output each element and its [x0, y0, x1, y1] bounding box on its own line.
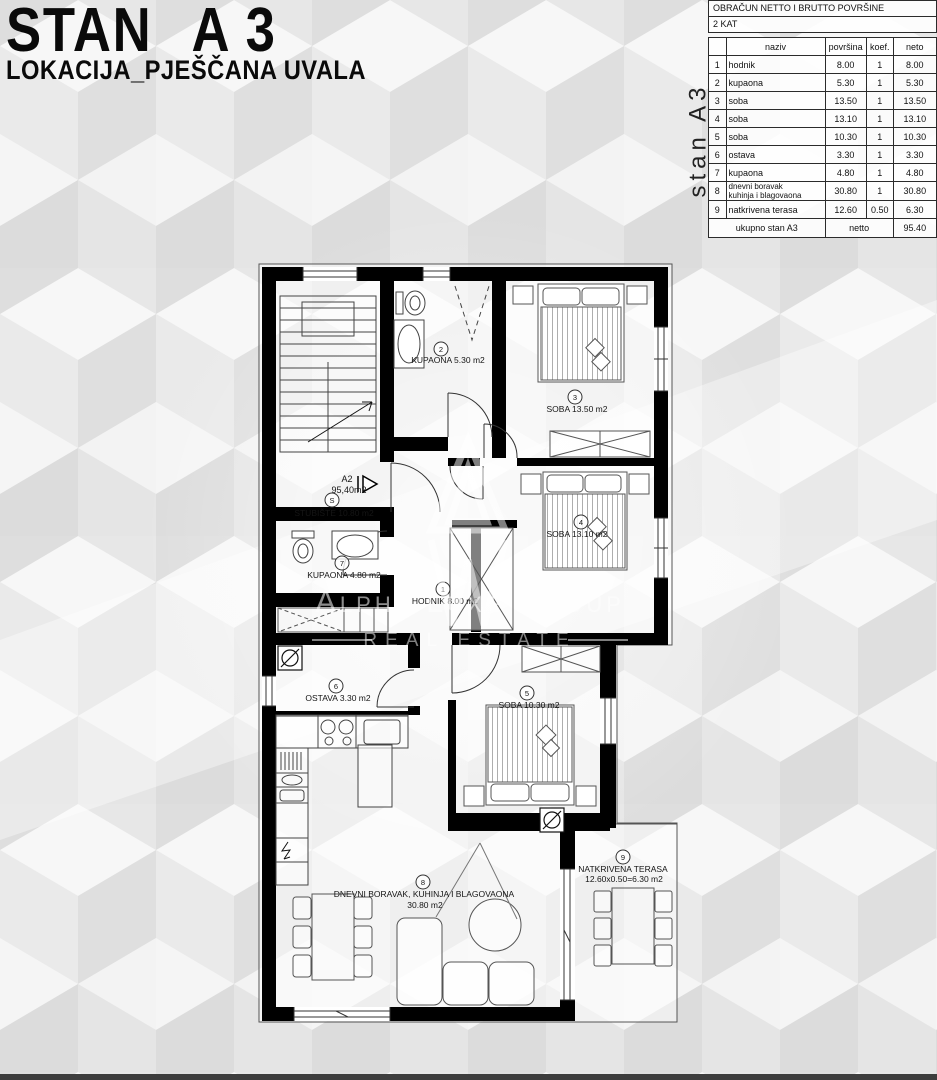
wardrobe-soba3: [550, 431, 650, 457]
chair: [293, 955, 311, 977]
svg-text:5: 5: [525, 689, 529, 698]
toilet-tank: [292, 531, 314, 538]
coffee-table: [469, 899, 521, 951]
nightstand: [627, 286, 647, 304]
nightstand: [521, 474, 541, 494]
total-mode: netto: [825, 219, 893, 238]
nightstand: [576, 786, 596, 806]
svg-text:NATKRIVENA TERASA: NATKRIVENA TERASA: [578, 864, 668, 874]
svg-text:30.80 m2: 30.80 m2: [407, 900, 443, 910]
window: [423, 267, 450, 281]
sofa-chaise: [397, 918, 442, 1005]
table-row: 2kupaona5.3015.30: [709, 74, 937, 92]
nightstand: [513, 286, 533, 304]
svg-text:95,40m2: 95,40m2: [331, 485, 366, 495]
svg-text:8: 8: [421, 878, 425, 887]
svg-text:STUBIŠTE 10.80 m2: STUBIŠTE 10.80 m2: [294, 508, 374, 518]
svg-text:S: S: [329, 496, 334, 505]
svg-text:DNEVNI BORAVAK, KUHINJA I BLAG: DNEVNI BORAVAK, KUHINJA I BLAGOVAONA: [334, 889, 515, 899]
area-table: naziv površina koef. neto 1hodnik8.0018.…: [708, 37, 937, 238]
table-header-box: OBRAČUN NETTO I BRUTTO POVRŠINE 2 KAT: [708, 0, 937, 33]
sink-basin: [337, 535, 373, 557]
table-row: 1hodnik8.0018.00: [709, 56, 937, 74]
chair: [354, 897, 372, 919]
table-floor: 2 KAT: [709, 17, 936, 32]
title-block: STANA 3 LOKACIJA_PJEŠČANA UVALA: [6, 0, 415, 86]
chair: [293, 897, 311, 919]
chair: [655, 945, 672, 966]
pillow: [585, 475, 621, 492]
washing-machine: [540, 808, 564, 832]
page-subtitle: LOKACIJA_PJEŠČANA UVALA: [6, 55, 366, 86]
area-table-panel: OBRAČUN NETTO I BRUTTO POVRŠINE 2 KAT st…: [693, 0, 937, 238]
table-row: 4soba13.10113.10: [709, 110, 937, 128]
svg-text:A2: A2: [341, 474, 352, 484]
kitchen-island: [358, 745, 392, 807]
table-column-header-row: naziv površina koef. neto: [709, 38, 937, 56]
watermark-brand: Alpha Luxe Group: [315, 584, 625, 619]
nightstand: [464, 786, 484, 806]
page-title: STANA 3: [6, 0, 354, 62]
svg-text:12.60x0.50=6.30 m2: 12.60x0.50=6.30 m2: [585, 874, 663, 884]
pillow: [543, 288, 580, 305]
svg-text:2: 2: [439, 345, 443, 354]
col-neto: neto: [893, 38, 936, 56]
table-row: 6ostava3.3013.30: [709, 146, 937, 164]
chair: [594, 945, 611, 966]
toilet-bowl: [405, 291, 425, 315]
sofa-seat: [489, 962, 534, 1005]
table-row: 9natkrivena terasa12.600.506.30: [709, 201, 937, 219]
watermark-text: Alpha Luxe Group REAL ESTATE: [312, 584, 628, 651]
chair: [655, 918, 672, 939]
col-koef: koef.: [866, 38, 893, 56]
bottom-bar: [0, 1074, 937, 1080]
window: [262, 676, 276, 706]
table-row: 7kupaona4.8014.80: [709, 164, 937, 182]
chair: [293, 926, 311, 948]
window: [600, 698, 616, 744]
pillow: [531, 784, 569, 801]
sliding-door: [560, 869, 575, 1000]
washing-machine: [278, 646, 302, 670]
chair: [655, 891, 672, 912]
svg-text:SOBA 13.10 m2: SOBA 13.10 m2: [547, 529, 608, 539]
svg-text:OSTAVA 3.30 m2: OSTAVA 3.30 m2: [305, 693, 370, 703]
chair: [354, 926, 372, 948]
col-povrsina: površina: [825, 38, 866, 56]
watermark-tagline: REAL ESTATE: [363, 630, 576, 651]
svg-text:SOBA 13.50 m2: SOBA 13.50 m2: [547, 404, 608, 414]
svg-text:3: 3: [573, 393, 577, 402]
chair: [594, 918, 611, 939]
svg-text:9: 9: [621, 853, 625, 862]
svg-text:7: 7: [340, 559, 344, 568]
window: [654, 518, 668, 578]
kupaona7-fixtures: [292, 531, 378, 563]
toilet-tank: [396, 292, 403, 314]
toilet-bowl: [293, 539, 313, 563]
chair: [594, 891, 611, 912]
total-value: 95.40: [893, 219, 936, 238]
table-title: OBRAČUN NETTO I BRUTTO POVRŠINE: [709, 1, 936, 17]
col-naziv: naziv: [726, 38, 825, 56]
total-label: ukupno stan A3: [709, 219, 826, 238]
svg-text:4: 4: [579, 518, 583, 527]
svg-text:6: 6: [334, 682, 338, 691]
table-row: 8dnevni boravakkuhinja i blagovaona30.80…: [709, 182, 937, 201]
svg-text:KUPAONA 5.30 m2: KUPAONA 5.30 m2: [411, 355, 485, 365]
nightstand: [629, 474, 649, 494]
pillow: [547, 475, 583, 492]
svg-text:KUPAONA 4.80 m2: KUPAONA 4.80 m2: [307, 570, 381, 580]
sliding-window: [294, 1007, 390, 1021]
pillow: [491, 784, 529, 801]
chair: [354, 955, 372, 977]
apartment-side-label: stan A3: [691, 52, 707, 228]
window: [654, 327, 668, 391]
table-row: 5soba10.30110.30: [709, 128, 937, 146]
table-row: 3soba13.50113.50: [709, 92, 937, 110]
floorplan-page: A2 95,40m2 S STUBIŠTE 10.80 m2 1 HODNIK …: [0, 0, 937, 1080]
window: [303, 267, 357, 281]
sofa-seat: [443, 962, 488, 1005]
pillow: [582, 288, 619, 305]
svg-text:SOBA 10.30 m2: SOBA 10.30 m2: [499, 700, 560, 710]
table-total-row: ukupno stan A3 netto 95.40: [709, 219, 937, 238]
